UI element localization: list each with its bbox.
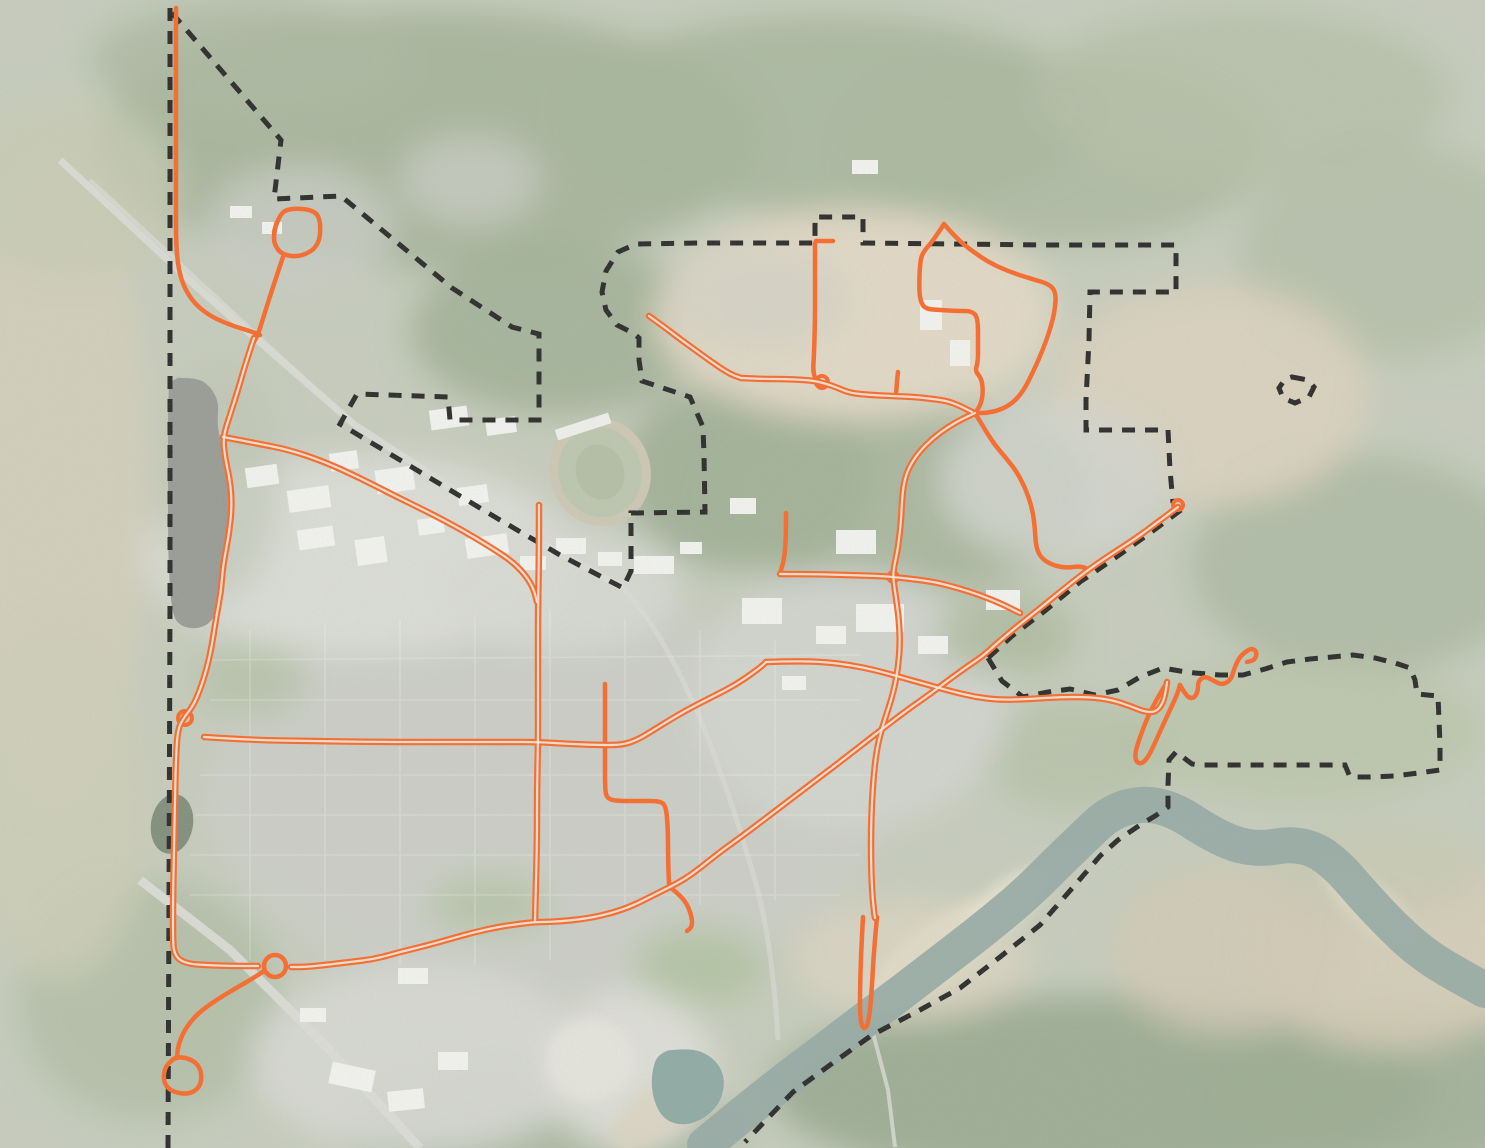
aerial-map-image — [0, 0, 1485, 1148]
photo-grain-overlay — [0, 0, 1485, 1148]
map-canvas[interactable] — [0, 0, 1485, 1148]
